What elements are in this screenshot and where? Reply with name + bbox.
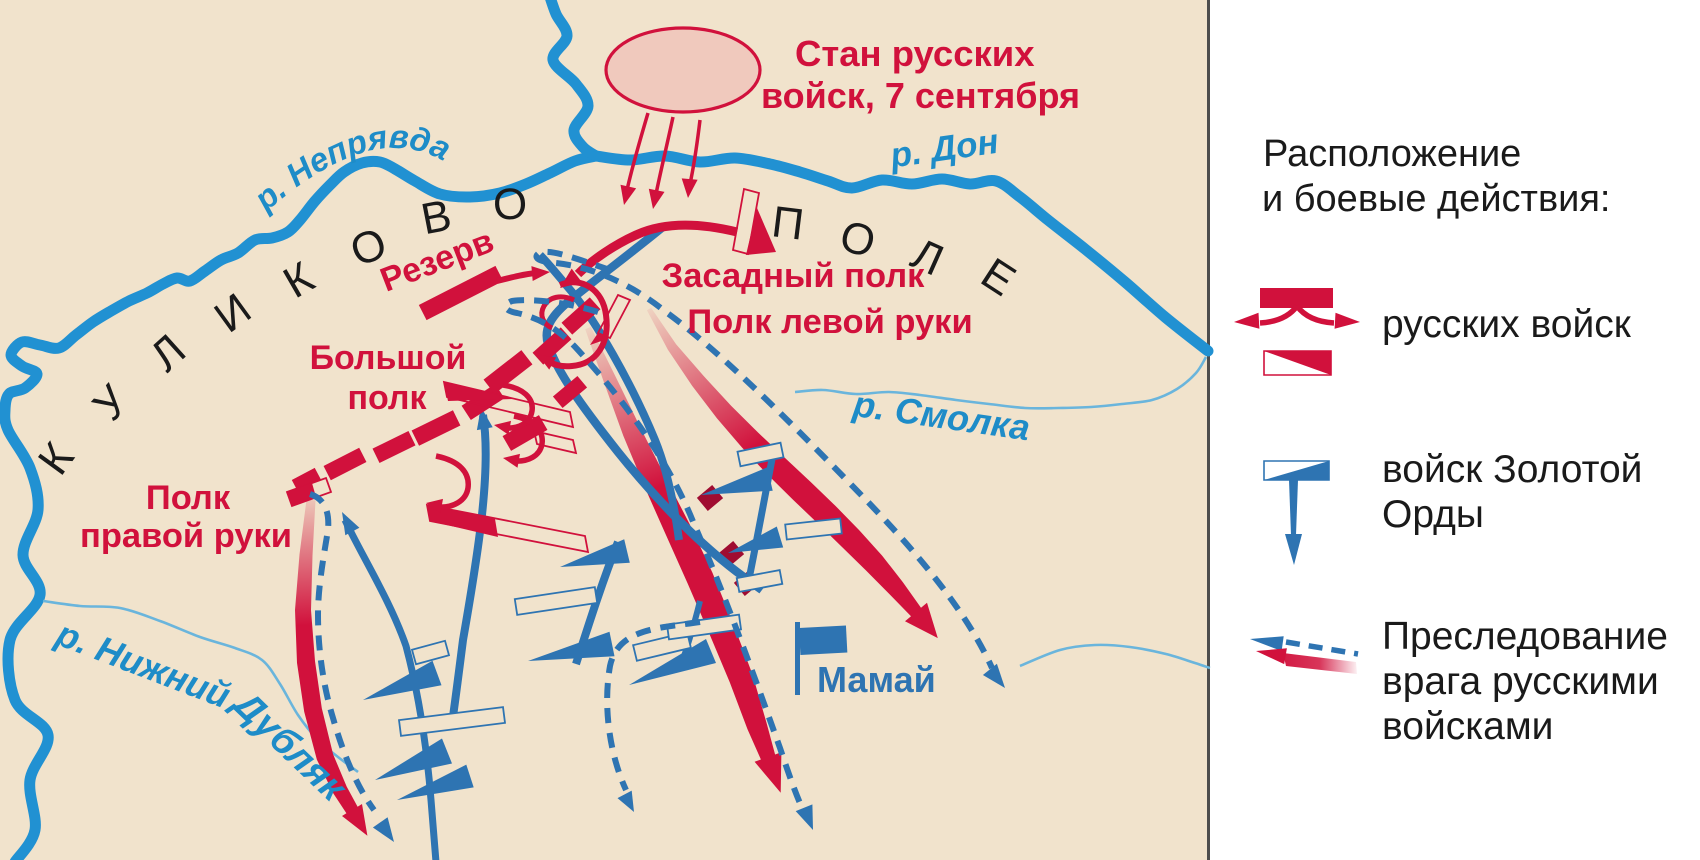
svg-text:и боевые действия:: и боевые действия: bbox=[1262, 178, 1611, 220]
svg-text:войск, 7 сентября: войск, 7 сентября bbox=[761, 75, 1080, 116]
svg-text:врага русскими: врага русскими bbox=[1382, 660, 1659, 703]
svg-text:русских войск: русских войск bbox=[1382, 303, 1632, 346]
svg-text:войск Золотой: войск Золотой bbox=[1382, 448, 1642, 491]
svg-text:войсками: войсками bbox=[1382, 705, 1553, 748]
svg-text:Стан русских: Стан русских bbox=[795, 33, 1035, 74]
svg-text:П: П bbox=[769, 197, 806, 249]
svg-text:Большой: Большой bbox=[310, 339, 467, 377]
svg-text:правой руки: правой руки bbox=[80, 517, 292, 555]
svg-text:полк: полк bbox=[347, 379, 427, 417]
svg-text:Мамай: Мамай bbox=[817, 659, 936, 700]
svg-text:Полк левой руки: Полк левой руки bbox=[687, 303, 972, 341]
svg-text:Преследование: Преследование bbox=[1382, 615, 1668, 658]
svg-text:Полк: Полк bbox=[146, 479, 231, 517]
svg-text:Засадный полк: Засадный полк bbox=[662, 257, 926, 295]
svg-text:О: О bbox=[492, 179, 529, 230]
svg-text:Расположение: Расположение bbox=[1263, 133, 1521, 175]
svg-text:Орды: Орды bbox=[1382, 493, 1484, 536]
